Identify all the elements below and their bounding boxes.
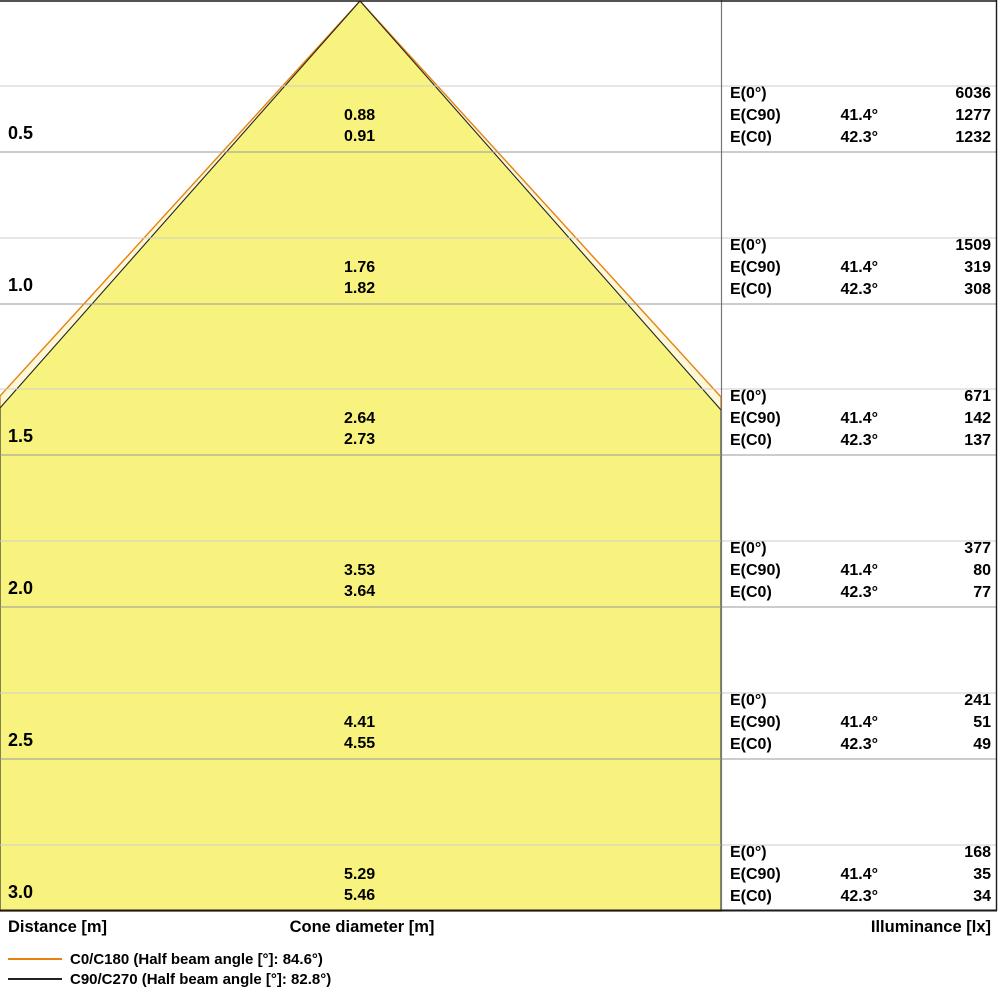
ec90-line: E(C90) 41.4° 1277 (730, 105, 991, 127)
illuminance-block: E(0°) 377 E(C90) 41.4° 80 E(C0) 42.3° 77 (730, 538, 991, 604)
ec0-angle: 42.3° (825, 734, 878, 756)
e0-value: 1509 (878, 235, 991, 257)
ec90-line: E(C90) 41.4° 142 (730, 408, 991, 430)
cone-diameter-c90: 0.88 (344, 105, 404, 126)
ec0-value: 49 (878, 734, 991, 756)
distance-label: 1.5 (8, 425, 33, 447)
e0-angle (825, 83, 878, 105)
e0-value: 6036 (878, 83, 991, 105)
e0-value: 168 (878, 842, 991, 864)
illuminance-block: E(0°) 1509 E(C90) 41.4° 319 E(C0) 42.3° … (730, 235, 991, 301)
ec90-line: E(C90) 41.4° 51 (730, 712, 991, 734)
ec0-line: E(C0) 42.3° 308 (730, 279, 991, 301)
ec90-angle: 41.4° (825, 257, 878, 279)
cone-diameter-c90: 1.76 (344, 257, 404, 278)
ec0-angle: 42.3° (825, 279, 878, 301)
e0-angle (825, 690, 878, 712)
ec0-label: E(C0) (730, 582, 825, 604)
ec0-line: E(C0) 42.3° 34 (730, 886, 991, 908)
ec90-label: E(C90) (730, 712, 825, 734)
ec90-angle: 41.4° (825, 712, 878, 734)
illuminance-block: E(0°) 6036 E(C90) 41.4° 1277 E(C0) 42.3°… (730, 83, 991, 149)
distance-label: 1.0 (8, 274, 33, 296)
legend-label-c90: C90/C270 (Half beam angle [°]: 82.8°) (70, 971, 331, 988)
e0-line: E(0°) 168 (730, 842, 991, 864)
ec0-value: 137 (878, 430, 991, 452)
ec90-label: E(C90) (730, 560, 825, 582)
ec90-value: 142 (878, 408, 991, 430)
cone-diameter-c0: 5.46 (344, 885, 404, 906)
cone-diameter-c0: 2.73 (344, 429, 404, 450)
ec90-line: E(C90) 41.4° 319 (730, 257, 991, 279)
e0-angle (825, 235, 878, 257)
ec90-label: E(C90) (730, 864, 825, 886)
ec90-line: E(C90) 41.4° 80 (730, 560, 991, 582)
cone-diameter-values: 4.41 4.55 (344, 712, 404, 754)
cone-diameter-c90: 2.64 (344, 408, 404, 429)
cone-diameter-c0: 1.82 (344, 278, 404, 299)
ec0-angle: 42.3° (825, 886, 878, 908)
e0-label: E(0°) (730, 386, 825, 408)
ec0-angle: 42.3° (825, 127, 878, 149)
cone-diameter-c0: 4.55 (344, 733, 404, 754)
legend-label-c0: C0/C180 (Half beam angle [°]: 84.6°) (70, 951, 323, 968)
cone-diameter-c0: 3.64 (344, 581, 404, 602)
ec90-value: 35 (878, 864, 991, 886)
ec90-angle: 41.4° (825, 105, 878, 127)
ec0-line: E(C0) 42.3° 77 (730, 582, 991, 604)
e0-label: E(0°) (730, 538, 825, 560)
e0-angle (825, 538, 878, 560)
distance-axis-label: Distance [m] (8, 917, 107, 937)
illuminance-block: E(0°) 168 E(C90) 41.4° 35 E(C0) 42.3° 34 (730, 842, 991, 908)
ec90-label: E(C90) (730, 257, 825, 279)
cone-diameter-values: 1.76 1.82 (344, 257, 404, 299)
legend-item-c90: C90/C270 (Half beam angle [°]: 82.8°) (8, 969, 331, 989)
ec0-label: E(C0) (730, 886, 825, 908)
e0-line: E(0°) 377 (730, 538, 991, 560)
ec90-angle: 41.4° (825, 560, 878, 582)
c0-line-swatch-icon (8, 958, 62, 960)
ec90-value: 1277 (878, 105, 991, 127)
e0-label: E(0°) (730, 83, 825, 105)
ec0-value: 308 (878, 279, 991, 301)
cone-diameter-values: 5.29 5.46 (344, 864, 404, 906)
ec90-angle: 41.4° (825, 864, 878, 886)
ec90-value: 319 (878, 257, 991, 279)
cone-diameter-c90: 5.29 (344, 864, 404, 885)
cone-diameter-values: 2.64 2.73 (344, 408, 404, 450)
e0-value: 241 (878, 690, 991, 712)
illuminance-axis-label: Illuminance [lx] (871, 917, 991, 937)
illuminance-block: E(0°) 671 E(C90) 41.4° 142 E(C0) 42.3° 1… (730, 386, 991, 452)
ec0-angle: 42.3° (825, 582, 878, 604)
distance-label: 0.5 (8, 122, 33, 144)
ec0-label: E(C0) (730, 127, 825, 149)
ec0-line: E(C0) 42.3° 137 (730, 430, 991, 452)
e0-angle (825, 842, 878, 864)
ec90-label: E(C90) (730, 408, 825, 430)
e0-label: E(0°) (730, 690, 825, 712)
cone-diameter-c90: 3.53 (344, 560, 404, 581)
cone-diameter-c0: 0.91 (344, 126, 404, 147)
e0-line: E(0°) 241 (730, 690, 991, 712)
ec0-line: E(C0) 42.3° 1232 (730, 127, 991, 149)
cone-diameter-values: 3.53 3.64 (344, 560, 404, 602)
legend-item-c0: C0/C180 (Half beam angle [°]: 84.6°) (8, 949, 323, 969)
ec0-line: E(C0) 42.3° 49 (730, 734, 991, 756)
ec90-line: E(C90) 41.4° 35 (730, 864, 991, 886)
ec0-label: E(C0) (730, 734, 825, 756)
ec90-value: 80 (878, 560, 991, 582)
distance-label: 2.5 (8, 729, 33, 751)
distance-label: 2.0 (8, 577, 33, 599)
c90-line-swatch-icon (8, 978, 62, 980)
ec90-angle: 41.4° (825, 408, 878, 430)
distance-label: 3.0 (8, 881, 33, 903)
e0-label: E(0°) (730, 235, 825, 257)
e0-angle (825, 386, 878, 408)
ec90-label: E(C90) (730, 105, 825, 127)
e0-line: E(0°) 6036 (730, 83, 991, 105)
ec0-value: 1232 (878, 127, 991, 149)
cone-diameter-values: 0.88 0.91 (344, 105, 404, 147)
e0-value: 671 (878, 386, 991, 408)
cone-diagram-page: 0.5 0.88 0.91 E(0°) 6036 E(C90) 41.4° 12… (0, 0, 1000, 1000)
illuminance-block: E(0°) 241 E(C90) 41.4° 51 E(C0) 42.3° 49 (730, 690, 991, 756)
ec90-value: 51 (878, 712, 991, 734)
ec0-angle: 42.3° (825, 430, 878, 452)
ec0-value: 77 (878, 582, 991, 604)
ec0-value: 34 (878, 886, 991, 908)
cone-diameter-c90: 4.41 (344, 712, 404, 733)
ec0-label: E(C0) (730, 430, 825, 452)
e0-line: E(0°) 671 (730, 386, 991, 408)
e0-line: E(0°) 1509 (730, 235, 991, 257)
e0-label: E(0°) (730, 842, 825, 864)
ec0-label: E(C0) (730, 279, 825, 301)
e0-value: 377 (878, 538, 991, 560)
cone-diameter-axis-label: Cone diameter [m] (290, 917, 435, 937)
